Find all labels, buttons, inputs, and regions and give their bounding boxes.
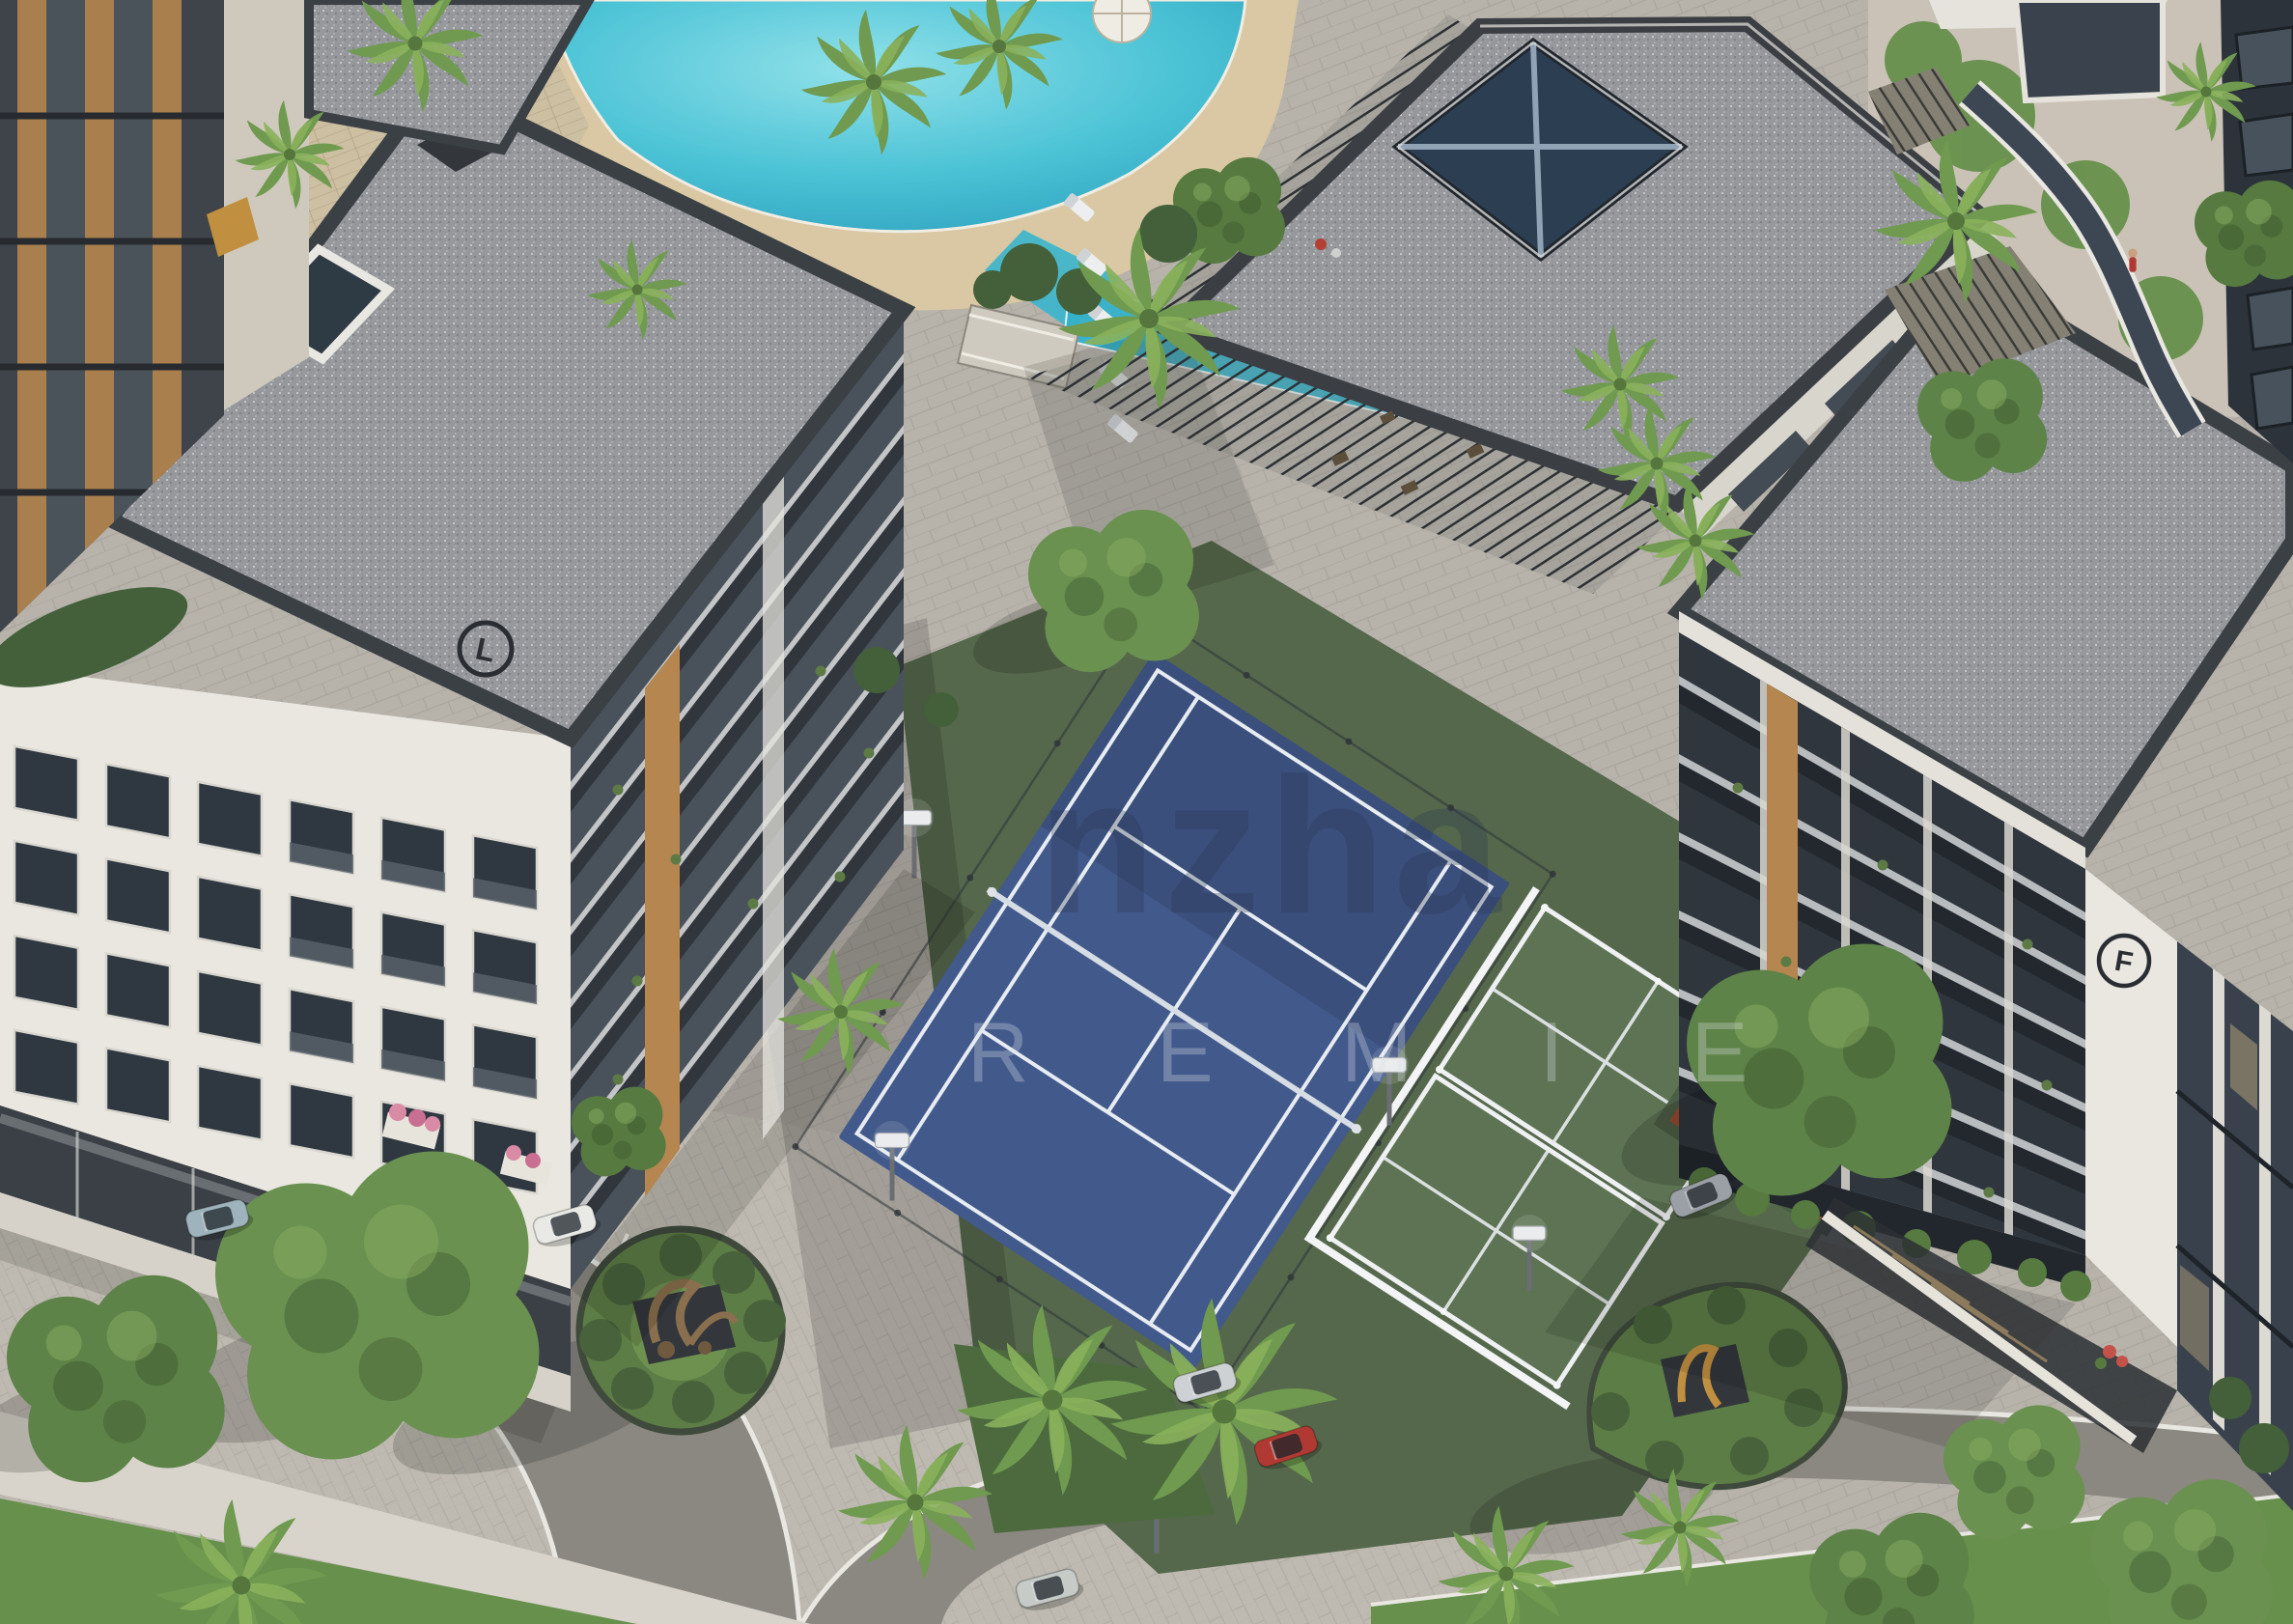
tree bbox=[7, 1275, 225, 1483]
watermark-line2: R E M I E bbox=[967, 1004, 1801, 1100]
tree bbox=[215, 1152, 540, 1460]
watermark-line1: nzha bbox=[1038, 739, 1509, 954]
person bbox=[2128, 248, 2138, 271]
tree bbox=[572, 1087, 666, 1177]
tree bbox=[2195, 181, 2293, 287]
tree bbox=[1028, 510, 1199, 672]
aerial-render: L bbox=[0, 0, 2293, 1624]
tree bbox=[1943, 1405, 2084, 1539]
tree bbox=[1917, 358, 2047, 482]
